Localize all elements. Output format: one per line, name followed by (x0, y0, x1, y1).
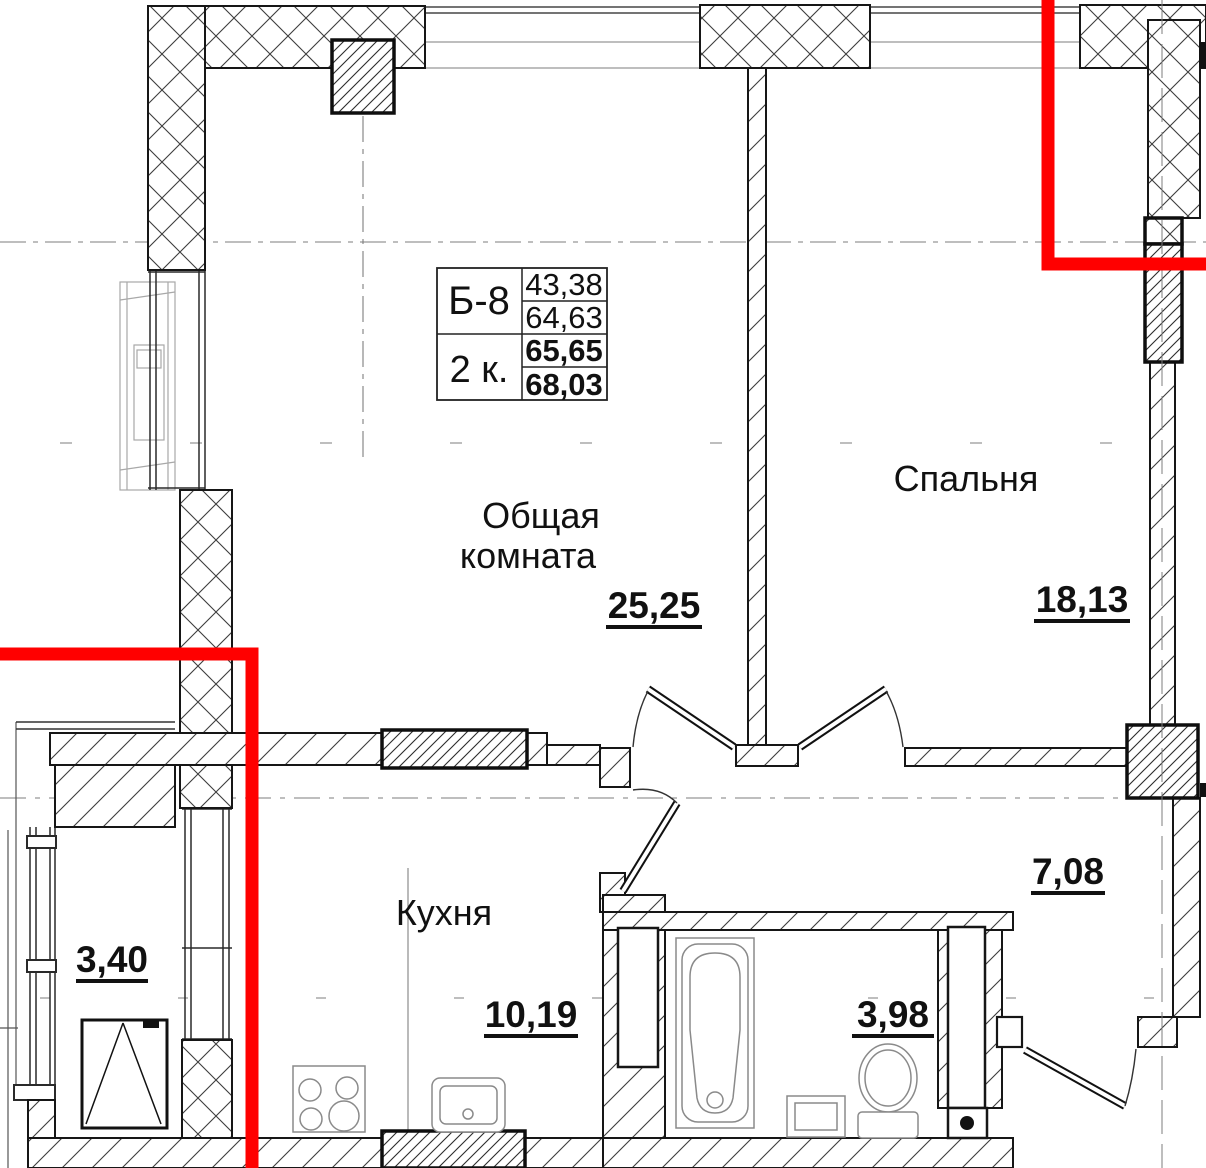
wall-kitchen-door-top-stub (600, 748, 630, 787)
wall-top-middle (700, 5, 870, 68)
kitchen-sink (432, 1078, 505, 1132)
wall-bathroom-bottom (603, 1138, 1013, 1168)
area-balcony: 3,40 (76, 939, 148, 980)
unit-code: Б-8 (448, 279, 510, 323)
area-bedroom: 18,13 (1036, 579, 1129, 620)
unit-table: Б-8 2 к. 43,38 64,63 65,65 68,03 (437, 267, 607, 402)
entry-left-jamb (997, 1017, 1022, 1047)
label-bedroom: Спальня (894, 458, 1039, 499)
pier-kitchen-bottom (382, 1131, 525, 1168)
wall-partition-living-bedroom (748, 68, 766, 747)
wall-center-door-stub (736, 745, 798, 766)
wall-right-upper (1148, 20, 1200, 218)
bathtub (676, 938, 754, 1128)
wall-left-upper (148, 6, 205, 270)
bathroom-sink (787, 1096, 845, 1137)
balcony-window-unit (82, 1020, 167, 1128)
area-kitchen: 10,19 (485, 994, 578, 1035)
area-hall: 7,08 (1032, 851, 1104, 892)
label-living-line1: Общая (482, 495, 600, 536)
vent-shaft-right (948, 927, 985, 1108)
pier-living-bottom (382, 730, 527, 768)
unit-area-living: 43,38 (525, 267, 603, 302)
area-bathroom: 3,98 (857, 994, 929, 1035)
unit-area-total: 65,65 (525, 333, 603, 368)
window-latch-icon (143, 1021, 159, 1028)
wall-right-lower (1173, 798, 1200, 1017)
stove (293, 1066, 365, 1132)
unit-type: 2 к. (450, 349, 509, 391)
label-living-line2: комната (460, 535, 597, 576)
pier-top-column (332, 40, 394, 113)
unit-area-with-balcony: 68,03 (525, 367, 603, 402)
floor-plan: Общая комната 25,25 Спальня 18,13 Кухня … (0, 0, 1206, 1168)
wall-bedroom-bottom (905, 748, 1145, 766)
vent-shaft-left (618, 928, 658, 1067)
pier-right-small (1145, 218, 1182, 244)
area-living: 25,25 (608, 585, 701, 626)
unit-area-rooms: 64,63 (525, 300, 603, 335)
wall-entry-right-stub (1138, 1017, 1177, 1047)
balcony-sill (14, 1085, 55, 1100)
riser-dot-icon (960, 1116, 974, 1130)
wall-balcony-corner (55, 765, 175, 827)
floorplan-page: Общая комната 25,25 Спальня 18,13 Кухня … (0, 0, 1206, 1168)
label-kitchen: Кухня (396, 892, 492, 933)
